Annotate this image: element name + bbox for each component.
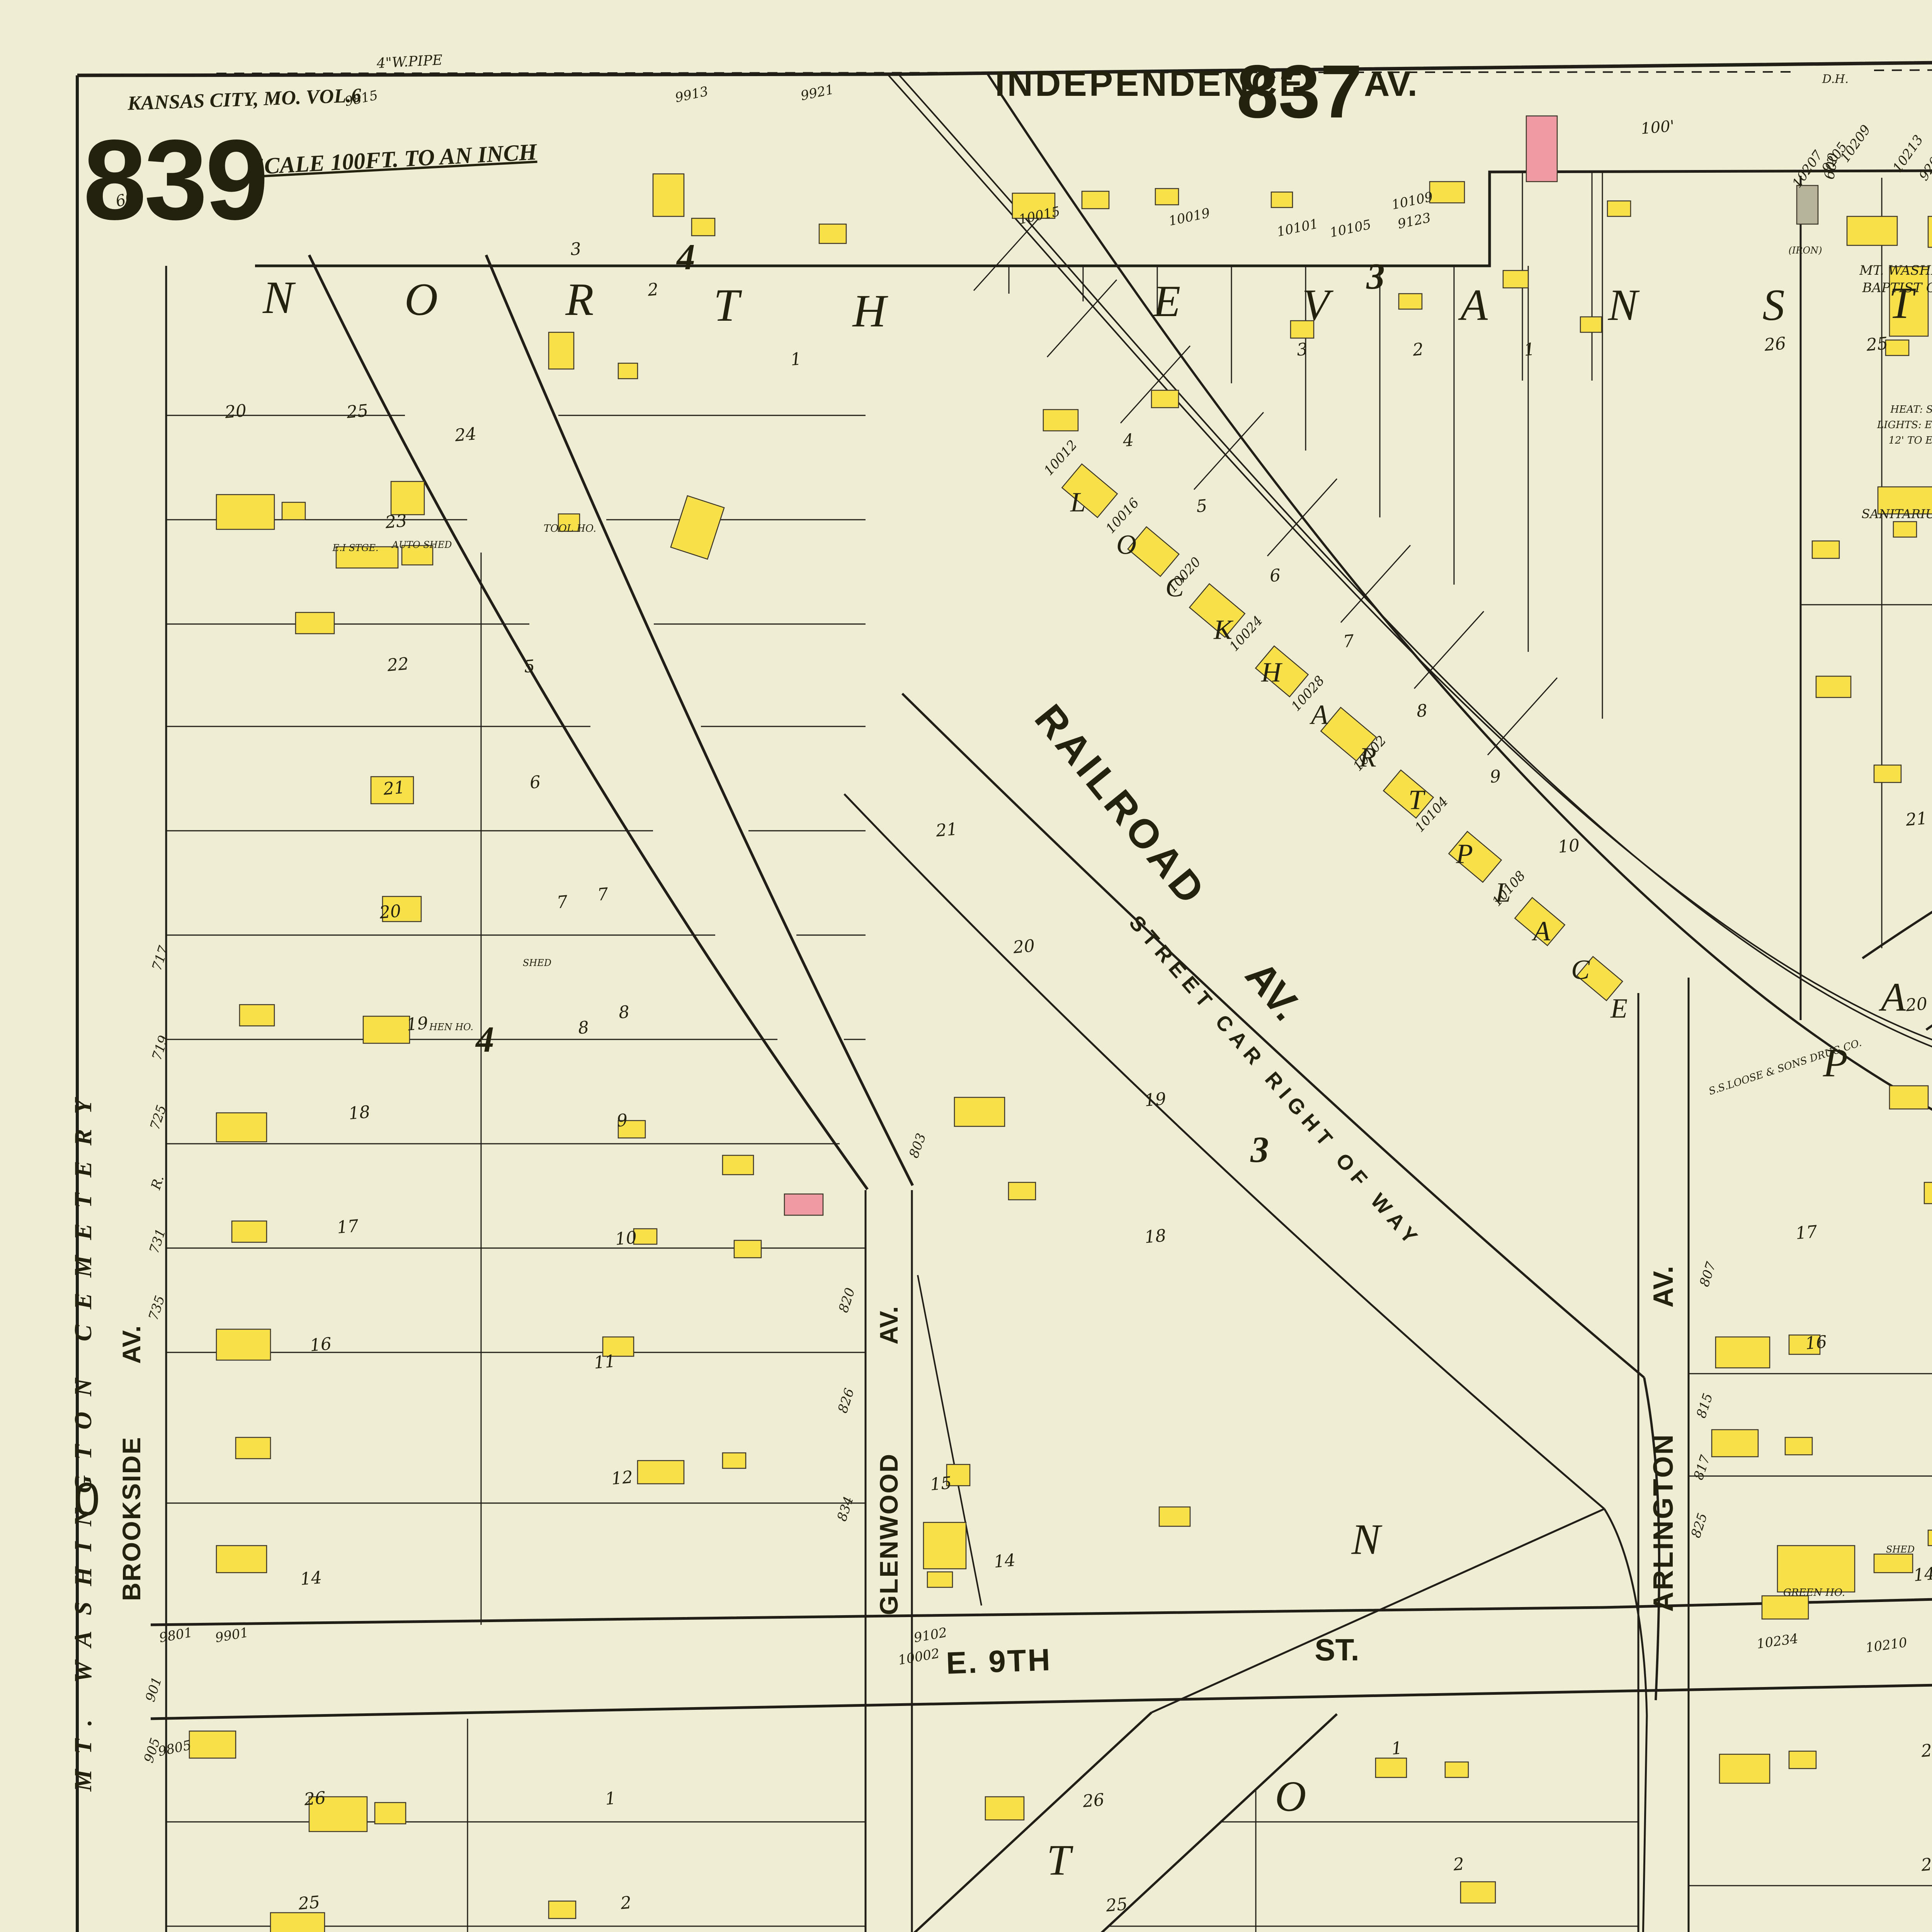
street-label: AV. [117, 1325, 146, 1364]
subdivision-letter: P [1456, 838, 1473, 870]
subdivision-letter: H [1261, 656, 1281, 689]
note-label: E.I STGE. [332, 543, 378, 553]
note-label: AUTO SHED [392, 539, 452, 550]
plate-number-839: 839 [83, 114, 266, 245]
subdivision-letter: T [1047, 1836, 1071, 1886]
lot-number: 3 [1296, 339, 1308, 360]
lot-number: 9 [616, 1110, 628, 1131]
lot-number: 19 [1144, 1089, 1167, 1111]
note-label: LIGHTS: ELECTRIC- [1877, 419, 1932, 431]
lot-number: 7 [556, 892, 568, 912]
subdivision-letter: H [853, 284, 886, 338]
lot-number: 20 [224, 401, 247, 422]
lot-number: 26 [1764, 333, 1787, 355]
note-label: SHED [523, 957, 551, 968]
note-label: HEN HO. [429, 1022, 473, 1032]
lot-number: 20 [379, 901, 402, 923]
note-label: GREEN HO. [1783, 1587, 1845, 1599]
lot-number: 21 [935, 819, 958, 841]
lot-number: 3 [570, 239, 582, 259]
lot-number: 7 [597, 884, 609, 905]
block-number: 3 [1250, 1128, 1269, 1171]
lot-number: 22 [386, 654, 410, 675]
lot-number: 4 [1122, 430, 1134, 451]
street-number-837: 837 [1236, 48, 1362, 135]
lot-number: 20 [1920, 1854, 1932, 1875]
lot-number: 12 [611, 1467, 634, 1489]
lot-number: 25 [1105, 1894, 1128, 1916]
note-label: TOOL HO. [544, 523, 596, 534]
block-number: 4 [677, 236, 695, 278]
subdivision-letter: E [1611, 993, 1628, 1025]
note-label: D.H. [1822, 73, 1849, 86]
note-label: SHED [1886, 1544, 1915, 1555]
street-label: ST. [1315, 1632, 1359, 1668]
lot-number: 18 [348, 1102, 371, 1124]
lot-number: 1 [604, 1788, 617, 1809]
lot-number: 15 [929, 1473, 952, 1495]
lot-number: 1 [790, 349, 802, 369]
lot-number: 21 [1905, 808, 1928, 830]
subdivision-letter: T [714, 279, 740, 332]
street-label: AV. [1648, 1266, 1679, 1308]
block-number: 4 [476, 1018, 494, 1061]
lot-number: 1 [1523, 339, 1536, 360]
subdivision-letter: S [1762, 280, 1785, 331]
lot-number: 25 [346, 401, 369, 422]
note-label: (IRON) [1789, 245, 1822, 256]
lot-number: 16 [1804, 1332, 1828, 1354]
block-number: 3 [1366, 255, 1385, 298]
lot-number: 6 [1269, 565, 1281, 586]
note-label: SANITARIUM [1862, 507, 1932, 521]
subdivision-letter: N [1352, 1515, 1381, 1565]
lot-number: 14 [993, 1550, 1016, 1572]
subdivision-letter: V [1302, 280, 1329, 331]
note-label: HEAT: STOVE- [1890, 404, 1932, 415]
lot-number: 26 [303, 1788, 327, 1810]
lot-number: 19 [406, 1013, 429, 1035]
lot-number: 20 [1905, 994, 1928, 1015]
lot-number: 16 [309, 1334, 332, 1355]
lot-number: 6 [529, 772, 541, 793]
sanborn-map-sheet: S KANSAS CITY, MO. VOL.6 839 SCALE 100FT… [0, 0, 1932, 1932]
lot-number: 9 [1489, 766, 1502, 787]
subdivision-letter: E [1153, 276, 1180, 327]
note-label: 100' [1640, 117, 1675, 138]
street-label: AV. [874, 1306, 903, 1344]
subdivision-letter: O [405, 273, 438, 326]
street-label-independence-av: AV. [1364, 64, 1417, 104]
lot-number: 10 [614, 1228, 638, 1249]
margin-label: MT. WASHINGTON CEMETERY [69, 1083, 97, 1791]
subdivision-letter: A [1533, 915, 1550, 947]
subdivision-letter: N [1608, 280, 1638, 331]
lot-number: 5 [1196, 496, 1208, 516]
subdivision-letter: A [1311, 699, 1328, 731]
note-label: 12' TO EAVES;- [1889, 435, 1932, 446]
street-label: BROOKSIDE [117, 1436, 146, 1601]
subdivision-letter: C [1571, 954, 1590, 986]
note-label: MT. WASHINGTON [1859, 263, 1932, 278]
lot-number: 2 [1452, 1854, 1465, 1874]
subdivision-letter: P [1823, 1039, 1848, 1086]
lot-number: 2 [647, 279, 659, 300]
lot-number: 24 [454, 424, 477, 446]
street-label: E. 9TH [946, 1642, 1052, 1681]
lot-number: 11 [593, 1351, 616, 1373]
street-label: GLENWOOD [874, 1453, 903, 1615]
lot-number: 14 [299, 1568, 323, 1589]
lot-number: 21 [1920, 1740, 1932, 1761]
subdivision-letter: A [1881, 974, 1906, 1020]
lot-number: 25 [1866, 333, 1889, 355]
lot-number: 21 [383, 777, 406, 799]
lot-number: 2 [620, 1893, 632, 1913]
lot-number: 2 [1412, 339, 1424, 360]
subdivision-letter: L [1070, 486, 1086, 519]
subdivision-letter: N [263, 271, 294, 324]
lot-number: 17 [1795, 1222, 1818, 1243]
lot-number: 14 [1913, 1564, 1932, 1585]
lot-number: 8 [618, 1002, 630, 1022]
note-label: BAPTIST CHURCH [1862, 280, 1932, 296]
lot-number: 10 [1557, 835, 1580, 857]
lot-number: 8 [1416, 701, 1428, 721]
lot-number: 23 [384, 511, 408, 532]
subdivision-letter: R [565, 273, 594, 326]
lot-number: 25 [298, 1892, 321, 1914]
subdivision-letter: T [1408, 784, 1424, 816]
lot-number: 8 [577, 1017, 590, 1038]
subdivision-letter: O [1275, 1772, 1306, 1822]
lot-number: 18 [1144, 1226, 1167, 1247]
street-label: ARLINGTON [1648, 1433, 1679, 1612]
subdivision-letter: O [1116, 529, 1136, 561]
lot-number: 7 [1342, 631, 1355, 651]
subdivision-letter: A [1461, 280, 1488, 331]
lot-number: 20 [1012, 936, 1036, 957]
lot-number: 5 [523, 656, 536, 677]
lot-number: 1 [1391, 1738, 1403, 1759]
lot-number: 17 [336, 1216, 359, 1238]
lot-number: 26 [1082, 1790, 1105, 1811]
